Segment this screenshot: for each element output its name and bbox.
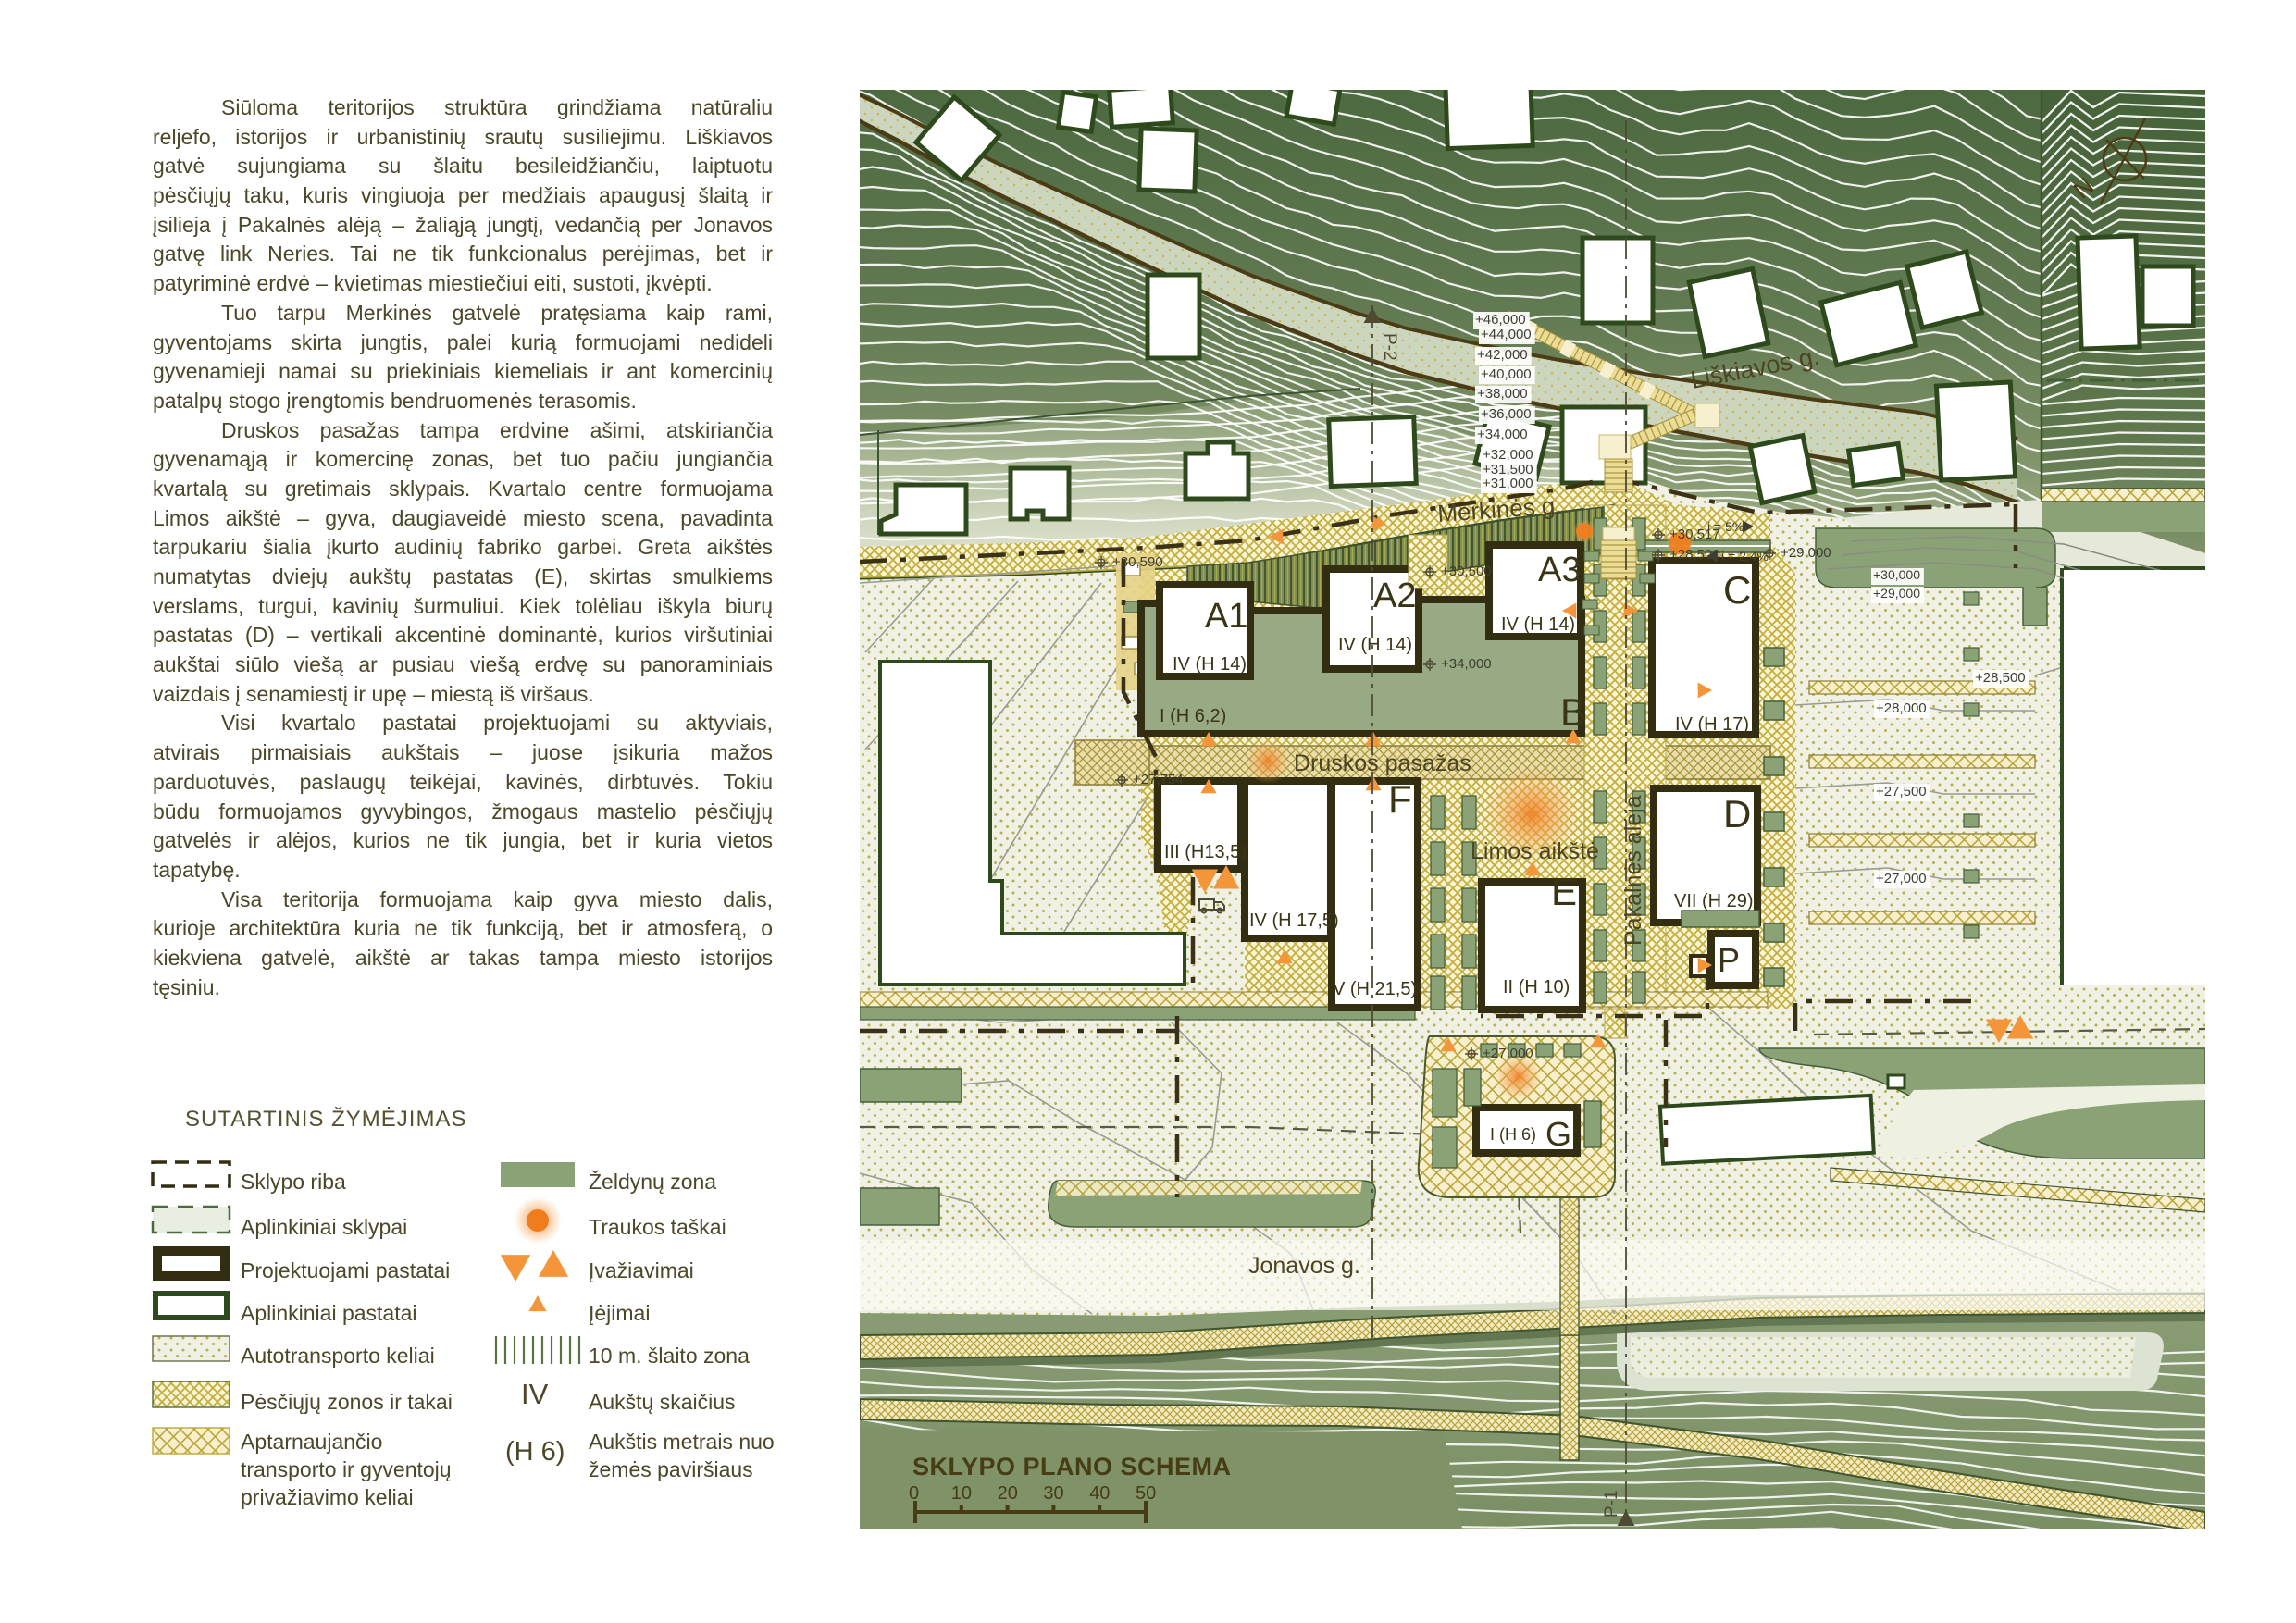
svg-text:VII (H 29): VII (H 29) bbox=[1674, 891, 1754, 911]
svg-text:privažiavimo keliai: privažiavimo keliai bbox=[241, 1485, 414, 1509]
svg-text:A2: A2 bbox=[1373, 576, 1416, 615]
svg-text:Įėjimai: Įėjimai bbox=[589, 1301, 650, 1325]
svg-text:0: 0 bbox=[909, 1483, 919, 1504]
svg-text:Įvažiavimai: Įvažiavimai bbox=[589, 1258, 694, 1282]
svg-text:F: F bbox=[1388, 777, 1412, 821]
svg-text:+27,500: +27,500 bbox=[1876, 784, 1927, 799]
svg-text:(H 6): (H 6) bbox=[505, 1437, 565, 1467]
svg-text:B: B bbox=[1560, 690, 1586, 734]
svg-text:20: 20 bbox=[998, 1483, 1018, 1504]
svg-text:Projektuojami pastatai: Projektuojami pastatai bbox=[241, 1258, 450, 1282]
svg-text:III (H13,5): III (H13,5) bbox=[1164, 842, 1247, 862]
svg-text:Traukos taškai: Traukos taškai bbox=[589, 1215, 726, 1239]
svg-text:+27,000: +27,000 bbox=[1483, 1046, 1533, 1061]
svg-text:IV (H 17,5): IV (H 17,5) bbox=[1249, 911, 1339, 931]
svg-text:P: P bbox=[1718, 941, 1740, 979]
svg-text:+38,000: +38,000 bbox=[1477, 386, 1528, 402]
svg-text:+32,000: +32,000 bbox=[1483, 447, 1533, 463]
svg-text:IV (H 14): IV (H 14) bbox=[1338, 635, 1412, 655]
svg-text:IV (H 14): IV (H 14) bbox=[1501, 614, 1575, 635]
svg-text:+29,000: +29,000 bbox=[1781, 545, 1831, 561]
svg-text:30: 30 bbox=[1043, 1483, 1063, 1504]
svg-text:+30,000: +30,000 bbox=[1873, 567, 1920, 582]
svg-text:+28,000: +28,000 bbox=[1876, 700, 1927, 716]
svg-text:Sklypo riba: Sklypo riba bbox=[241, 1170, 346, 1194]
svg-text:Autotransporto keliai: Autotransporto keliai bbox=[241, 1344, 435, 1368]
svg-text:40: 40 bbox=[1089, 1483, 1110, 1504]
svg-text:II (H 10): II (H 10) bbox=[1503, 977, 1570, 997]
svg-text:Aukštų skaičius: Aukštų skaičius bbox=[589, 1390, 736, 1414]
svg-text:+27,000: +27,000 bbox=[1876, 871, 1927, 886]
svg-text:D: D bbox=[1723, 792, 1751, 836]
svg-text:+31,000: +31,000 bbox=[1483, 476, 1533, 491]
svg-text:V (H 21,5): V (H 21,5) bbox=[1333, 979, 1417, 999]
svg-text:Aptarnaujančio: Aptarnaujančio bbox=[241, 1430, 382, 1454]
svg-text:I (H 6): I (H 6) bbox=[1490, 1125, 1536, 1144]
svg-text:+34,000: +34,000 bbox=[1477, 427, 1528, 442]
svg-text:IV (H 14): IV (H 14) bbox=[1173, 654, 1247, 675]
svg-text:transporto ir gyventojų: transporto ir gyventojų bbox=[241, 1457, 452, 1481]
svg-text:+27,754: +27,754 bbox=[1133, 772, 1184, 787]
svg-text:P-1: P-1 bbox=[1602, 1490, 1621, 1518]
svg-text:IV (H 17): IV (H 17) bbox=[1675, 714, 1749, 735]
svg-text:Pėsčiųjų zonos ir takai: Pėsčiųjų zonos ir takai bbox=[241, 1390, 453, 1414]
svg-text:SKLYPO PLANO SCHEMA: SKLYPO PLANO SCHEMA bbox=[912, 1453, 1232, 1481]
svg-text:Aukštis metrais nuo: Aukštis metrais nuo bbox=[589, 1430, 775, 1454]
svg-text:+29,000: +29,000 bbox=[1873, 586, 1920, 601]
svg-text:G: G bbox=[1545, 1115, 1571, 1153]
svg-text:10: 10 bbox=[951, 1483, 972, 1504]
svg-text:50: 50 bbox=[1136, 1483, 1156, 1504]
svg-text:+46,000: +46,000 bbox=[1475, 312, 1526, 328]
svg-text:SUTARTINIS ŽYMĖJIMAS: SUTARTINIS ŽYMĖJIMAS bbox=[185, 1107, 466, 1132]
svg-text:Aplinkiniai pastatai: Aplinkiniai pastatai bbox=[241, 1301, 417, 1325]
svg-text:+44,000: +44,000 bbox=[1481, 327, 1532, 342]
svg-text:Druskos pasažas: Druskos pasažas bbox=[1294, 750, 1471, 776]
svg-text:+42,000: +42,000 bbox=[1477, 347, 1528, 363]
svg-text:Limos aikštė: Limos aikštė bbox=[1471, 838, 1599, 864]
svg-text:Želdynų zona: Želdynų zona bbox=[589, 1170, 716, 1194]
svg-text:I (H 6,2): I (H 6,2) bbox=[1160, 706, 1226, 726]
svg-text:+36,000: +36,000 bbox=[1481, 406, 1532, 422]
svg-text:A3: A3 bbox=[1538, 551, 1581, 589]
svg-text:E: E bbox=[1551, 870, 1577, 913]
svg-text:A1: A1 bbox=[1205, 597, 1247, 636]
svg-text:Pakalnės alėja: Pakalnės alėja bbox=[1620, 795, 1646, 946]
svg-text:Jonavos g.: Jonavos g. bbox=[1248, 1253, 1360, 1279]
svg-text:žemės paviršiaus: žemės paviršiaus bbox=[589, 1457, 753, 1481]
svg-text:+28,500: +28,500 bbox=[1975, 670, 2026, 686]
svg-text:IV: IV bbox=[521, 1378, 549, 1410]
svg-text:P-2: P-2 bbox=[1380, 333, 1399, 361]
svg-text:+40,000: +40,000 bbox=[1481, 366, 1532, 382]
svg-text:i = 5%: i = 5% bbox=[1707, 519, 1744, 534]
svg-text:i = 2,4%: i = 2,4% bbox=[1721, 549, 1769, 564]
svg-text:Aplinkiniai sklypai: Aplinkiniai sklypai bbox=[241, 1215, 407, 1239]
svg-text:+30,590: +30,590 bbox=[1112, 554, 1163, 570]
svg-text:+34,000: +34,000 bbox=[1441, 656, 1492, 672]
svg-text:10 m. šlaito zona: 10 m. šlaito zona bbox=[589, 1344, 750, 1368]
svg-text:C: C bbox=[1723, 568, 1751, 612]
svg-text:+30,500: +30,500 bbox=[1441, 564, 1492, 579]
